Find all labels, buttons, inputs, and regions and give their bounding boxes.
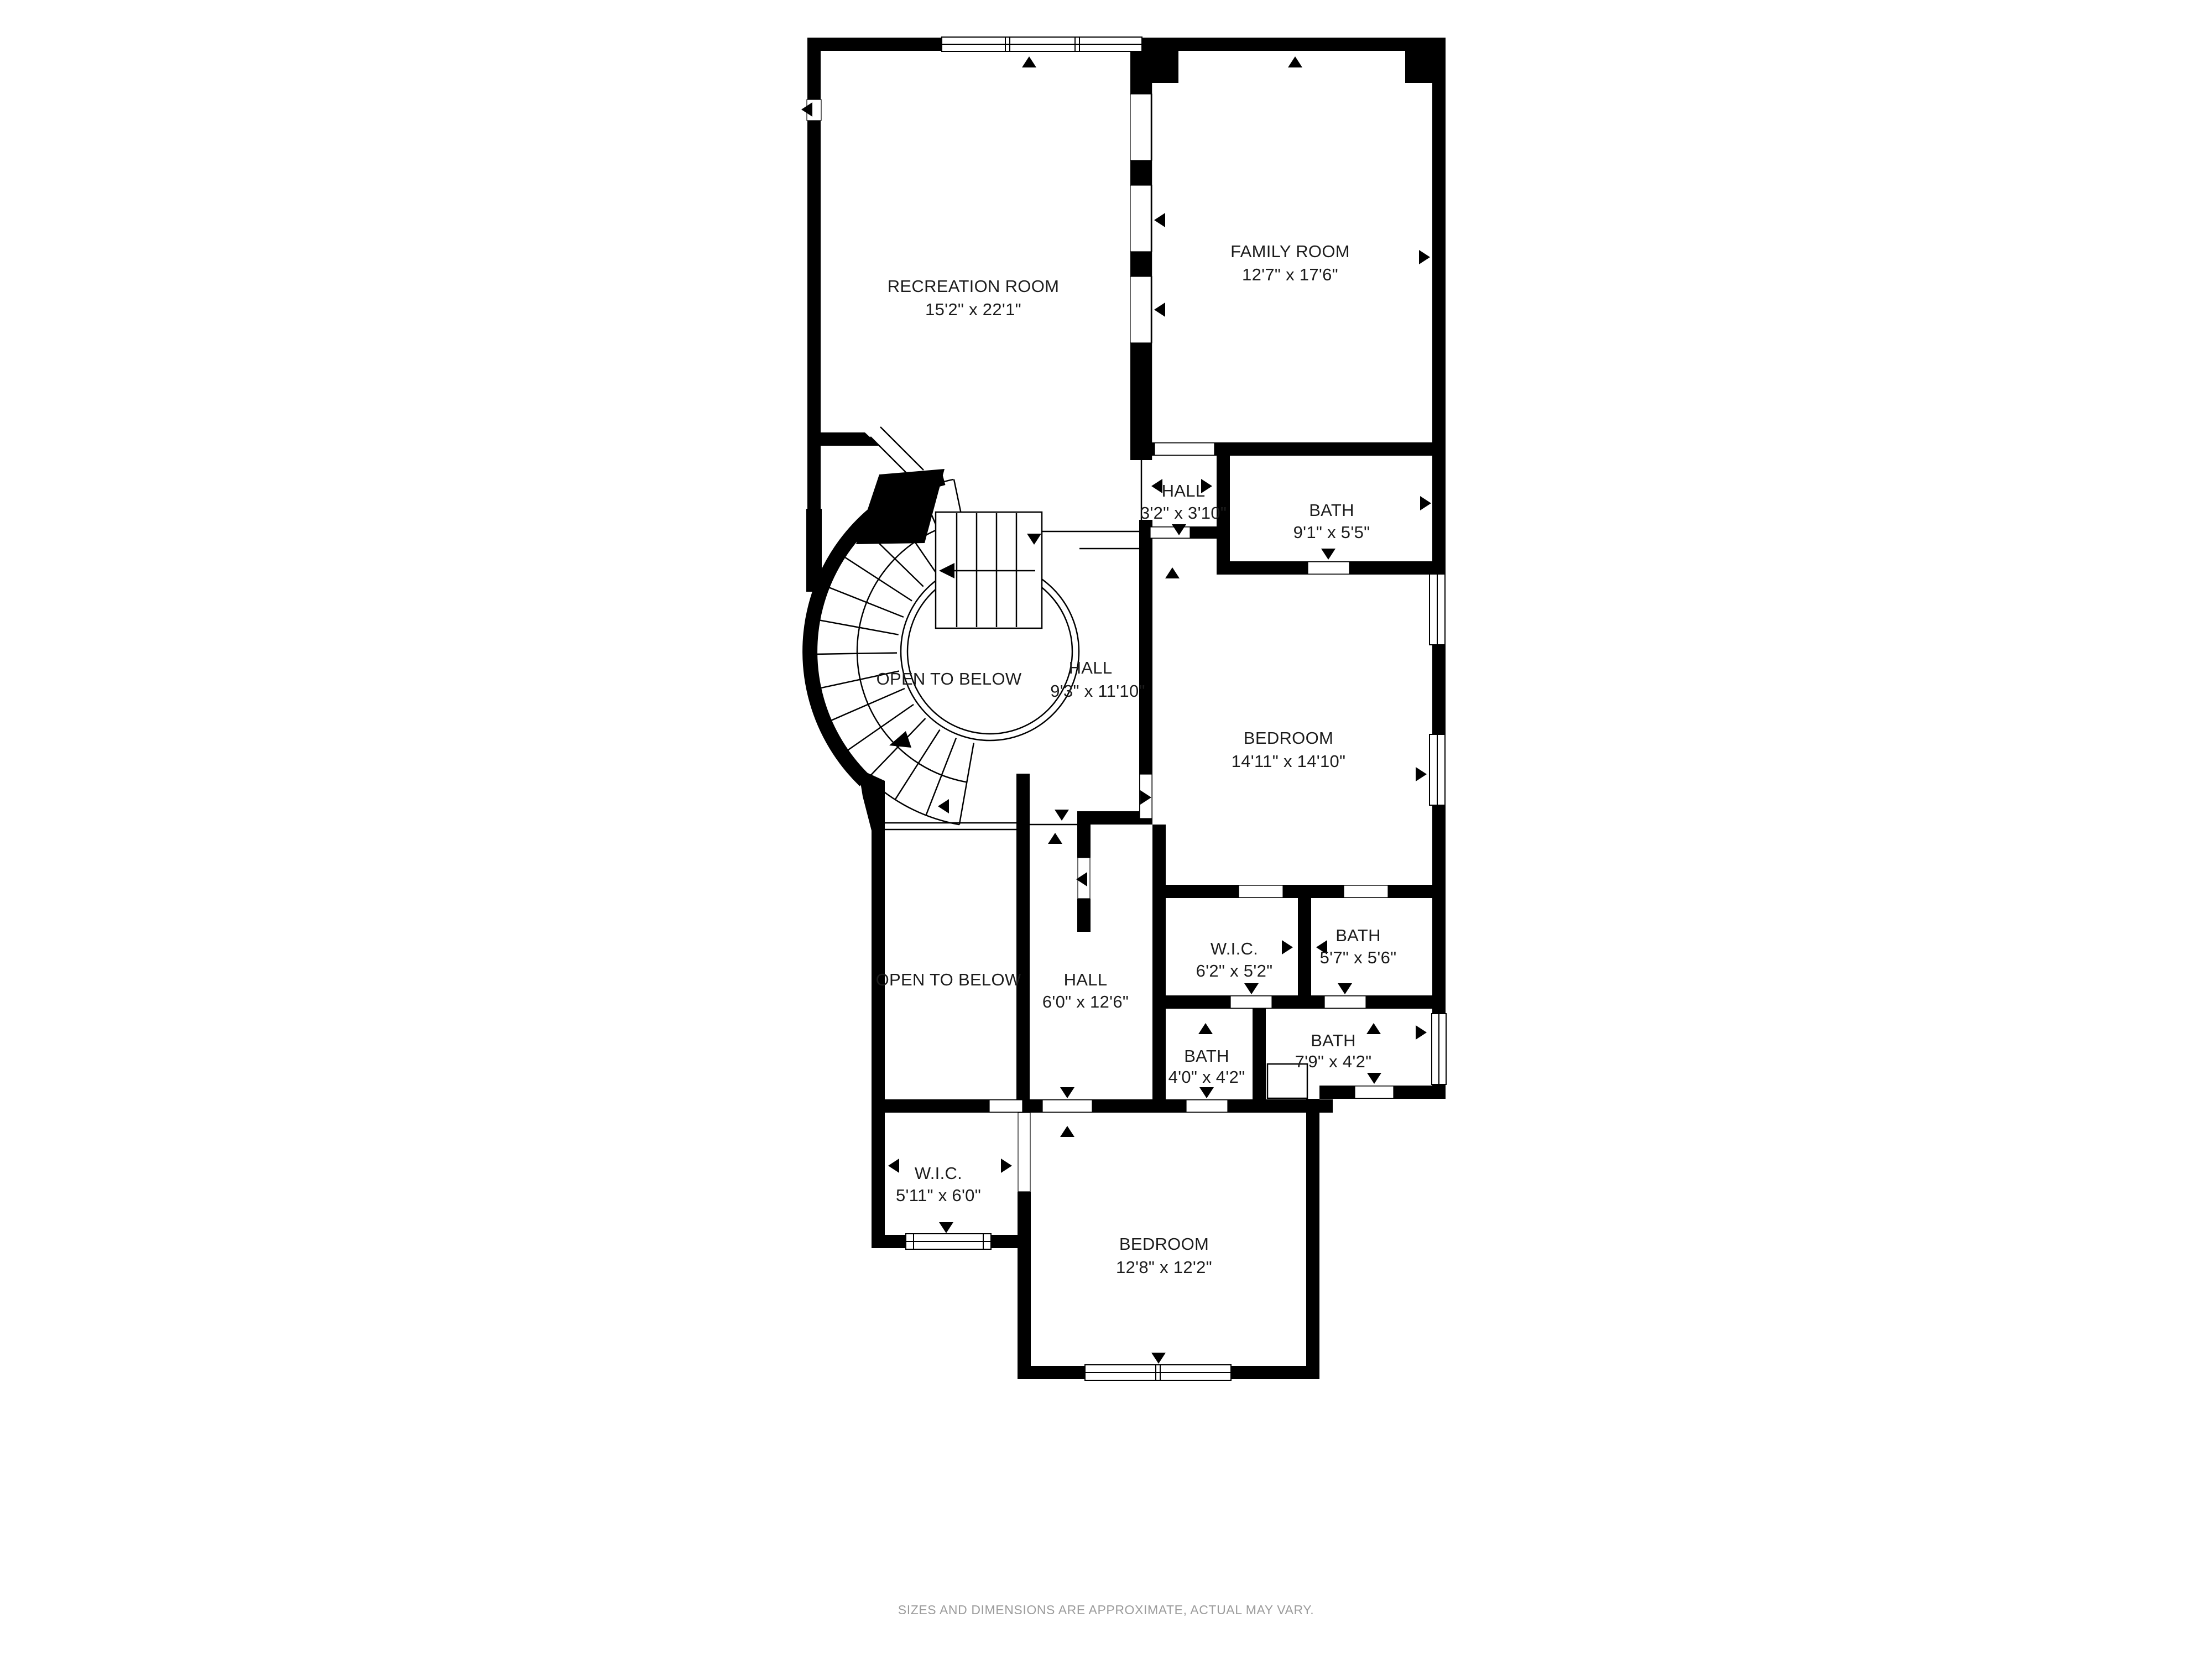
room-label-family-room: FAMILY ROOM (1230, 242, 1350, 261)
room-dims-hall-lower: 6'0" x 12'6" (1042, 992, 1129, 1011)
room-label-hall-lower: HALL (1064, 970, 1108, 989)
room-label-hall-upper: HALL (1162, 481, 1206, 500)
room-label-wic-lower: W.I.C. (915, 1164, 962, 1183)
room-label-hall-landing: HALL (1069, 658, 1113, 677)
door-arrow-icon (1154, 213, 1165, 227)
door-arrow-icon (1366, 1023, 1381, 1034)
door-arrow-icon (1416, 767, 1427, 781)
room-label-bath-7-9: BATH (1311, 1031, 1356, 1050)
door-arrow-icon (888, 1159, 899, 1173)
door-arrow-icon (1288, 56, 1302, 67)
door-arrow-icon (939, 1222, 953, 1233)
door-arrow-icon (1420, 496, 1431, 510)
door-arrow-icon (1244, 983, 1259, 994)
room-label-bedroom-primary: BEDROOM (1244, 728, 1333, 748)
room-label-bath-upper: BATH (1309, 500, 1354, 520)
room-dims-bedroom-second: 12'8" x 12'2" (1116, 1258, 1212, 1277)
room-dims-bath-7-9: 7'9" x 4'2" (1295, 1052, 1372, 1071)
door-arrow-icon (1060, 1126, 1074, 1137)
stair-direction-arrow-icon (889, 731, 911, 748)
door-arrow-icon (938, 799, 949, 813)
room-dims-wic-lower: 5'11" x 6'0" (896, 1186, 981, 1205)
room-label-bath-5-7: BATH (1335, 926, 1381, 945)
room-label-open-to-below-lower: OPEN TO BELOW (876, 970, 1021, 989)
door-arrow-icon (1199, 1087, 1214, 1098)
door-arrow-icon (1055, 810, 1069, 821)
room-label-wic-upper: W.I.C. (1211, 939, 1258, 958)
room-dims-bath-upper: 9'1" x 5'5" (1293, 523, 1370, 542)
door-arrow-icon (1022, 56, 1036, 67)
room-dims-bath-5-7: 5'7" x 5'6" (1320, 948, 1397, 967)
stair-landing-box (936, 512, 1042, 628)
floor-plan-page: { "plan": { "footer_disclaimer": "SIZES … (0, 0, 2212, 1659)
room-dims-bedroom-primary: 14'11" x 14'10" (1232, 752, 1346, 771)
room-label-bedroom-second: BEDROOM (1119, 1234, 1209, 1254)
window-symbols (906, 37, 1446, 1380)
room-dims-family-room: 12'7" x 17'6" (1242, 265, 1338, 284)
door-arrow-icon (1165, 567, 1180, 578)
door-arrow-icon (1154, 302, 1165, 317)
spiral-staircase-outer-wall (806, 469, 945, 831)
door-arrow-icon (1048, 833, 1062, 844)
room-label-recreation-room: RECREATION ROOM (888, 276, 1060, 296)
room-dims-recreation-room: 15'2" x 22'1" (925, 300, 1021, 319)
door-arrow-icon (1367, 1073, 1381, 1084)
door-arrow-icon (1282, 940, 1293, 954)
disclaimer-text: SIZES AND DIMENSIONS ARE APPROXIMATE, AC… (0, 1603, 2212, 1618)
door-arrow-icon (1416, 1025, 1427, 1040)
door-arrow-icon (1151, 479, 1162, 493)
door-arrow-icon (1151, 1353, 1166, 1364)
stair-entry-walls (821, 427, 924, 748)
room-dims-wic-upper: 6'2" x 5'2" (1196, 961, 1273, 980)
door-arrow-icon (1321, 549, 1335, 560)
room-dims-bath-4-0: 4'0" x 4'2" (1168, 1067, 1245, 1087)
door-arrow-icon (1001, 1159, 1012, 1173)
room-dims-hall-upper: 3'2" x 3'10" (1140, 503, 1227, 523)
floor-plan-drawing: RECREATION ROOM 15'2" x 22'1" FAMILY ROO… (0, 0, 2212, 1659)
room-label-bath-4-0: BATH (1184, 1046, 1229, 1066)
room-label-open-to-below-stairs: OPEN TO BELOW (877, 669, 1022, 688)
door-arrow-icon (1060, 1087, 1074, 1098)
door-arrow-icon (1338, 983, 1352, 994)
room-dims-hall-landing: 9'3" x 11'10" (1050, 681, 1145, 701)
door-arrow-icon (1198, 1023, 1213, 1034)
walls-layer (807, 38, 1446, 1379)
door-arrow-icon (1419, 250, 1430, 264)
